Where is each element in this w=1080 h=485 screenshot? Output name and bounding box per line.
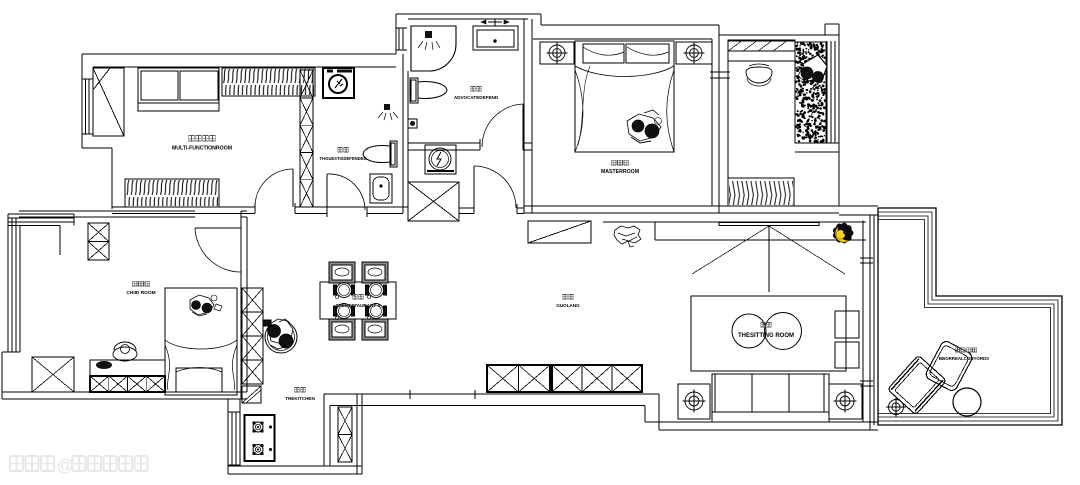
svg-text:CHIID ROOM: CHIID ROOM bbox=[126, 290, 155, 296]
svg-text:BBORREALCONYORDS: BBORREALCONYORDS bbox=[939, 356, 989, 361]
svg-text:ADVOCATEDEFEND: ADVOCATEDEFEND bbox=[454, 95, 499, 100]
svg-text:THERESTAURANT o: THERESTAURANT o bbox=[336, 303, 381, 308]
svg-text:@: @ bbox=[57, 456, 74, 475]
svg-text:THGUESTISDEFENDED: THGUESTISDEFENDED bbox=[320, 156, 367, 161]
svg-text:MASTERROOM: MASTERROOM bbox=[601, 169, 639, 175]
svg-text:MULTI-FUNCTIONROOM: MULTI-FUNCTIONROOM bbox=[172, 146, 232, 152]
svg-text:THEKITCHEN: THEKITCHEN bbox=[285, 396, 315, 401]
svg-text:GUOLANG: GUOLANG bbox=[556, 303, 580, 308]
svg-text:THESITTING ROOM: THESITTING ROOM bbox=[738, 333, 794, 339]
